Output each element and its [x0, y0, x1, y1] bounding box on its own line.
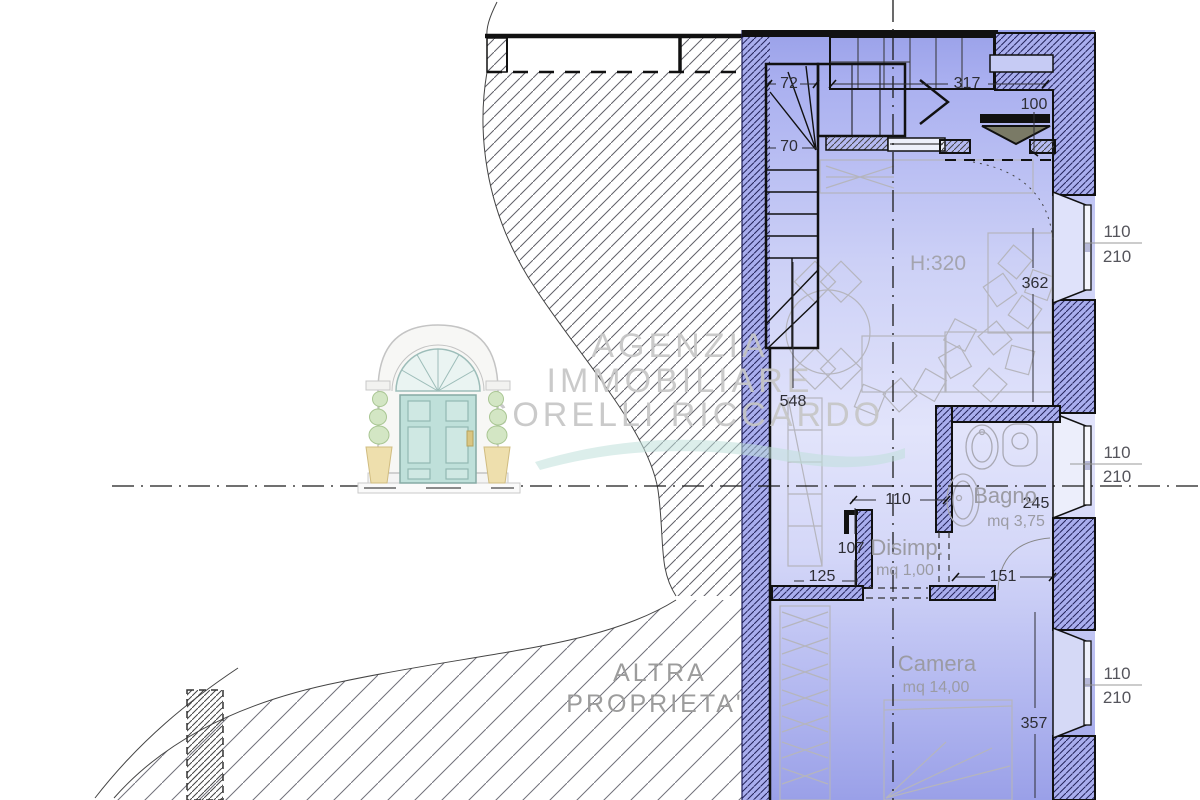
plant-pot — [366, 447, 392, 483]
window-handle — [1085, 243, 1090, 252]
label-disimpegno: Disimp. — [870, 535, 943, 560]
niche-right-block — [680, 38, 742, 72]
window-3 — [1053, 628, 1091, 738]
label-room-height: H:320 — [910, 252, 966, 275]
niche-opening — [507, 38, 680, 72]
entrance-marker-bar — [980, 114, 1050, 123]
hall-bottom-wall — [930, 586, 995, 600]
watermark-line1: AGENZIA — [591, 327, 768, 365]
dim-disimp-door: 110 — [885, 491, 911, 508]
stair-wall-band — [826, 136, 888, 150]
window-height-label: 210 — [1103, 688, 1131, 707]
niche-left-block — [487, 38, 507, 72]
door-handle — [467, 431, 473, 446]
dim-hall-width: 125 — [809, 568, 836, 585]
label-disimpegno-area: mq 1,00 — [876, 562, 934, 579]
watermark-line3: GORELLI RICCARDO — [482, 396, 884, 434]
other-property-line2: PROPRIETA' — [566, 690, 743, 718]
window-handle — [1085, 678, 1090, 687]
window-width-label: 110 — [1103, 664, 1130, 683]
plant-pot — [484, 447, 510, 483]
window-height-label: 210 — [1103, 467, 1131, 486]
entry-jamb-left — [940, 140, 970, 153]
bagno-top-wall — [936, 406, 1060, 422]
watermark-line2: IMMOBILIARE — [547, 362, 814, 400]
window-height-label: 210 — [1103, 247, 1131, 266]
label-bagno: Bagno — [973, 483, 1037, 508]
window-2 — [1053, 413, 1091, 518]
label-bagno-area: mq 3,75 — [987, 513, 1045, 530]
living-bottom-wall — [772, 586, 863, 600]
dim-stair-top: 72 — [780, 75, 798, 92]
entry-niche — [990, 55, 1053, 72]
window-width-label: 110 — [1103, 222, 1130, 241]
dim-camera-length: 357 — [1021, 715, 1048, 732]
dim-living-length: 548 — [780, 393, 807, 410]
dim-stair-mid: 70 — [780, 138, 798, 155]
window-width-label: 110 — [1103, 443, 1130, 462]
dim-bagno-door: 151 — [990, 568, 1017, 585]
label-camera-area: mq 14,00 — [903, 679, 970, 696]
dim-living-east: 362 — [1022, 275, 1049, 292]
dim-entry-depth: 100 — [1021, 96, 1048, 113]
hatched-pillar — [187, 690, 223, 800]
label-camera: Camera — [898, 651, 977, 676]
window-handle — [1085, 461, 1090, 470]
floor-plan-canvas: AGENZIA IMMOBILIARE GORELLI RICCARDO — [0, 0, 1200, 800]
dim-entry-width: 317 — [954, 75, 981, 92]
window-1 — [1053, 192, 1091, 303]
other-property-line1: ALTRA — [613, 659, 707, 687]
wall-stub — [844, 510, 849, 534]
dim-disimp-depth: 107 — [838, 540, 865, 557]
